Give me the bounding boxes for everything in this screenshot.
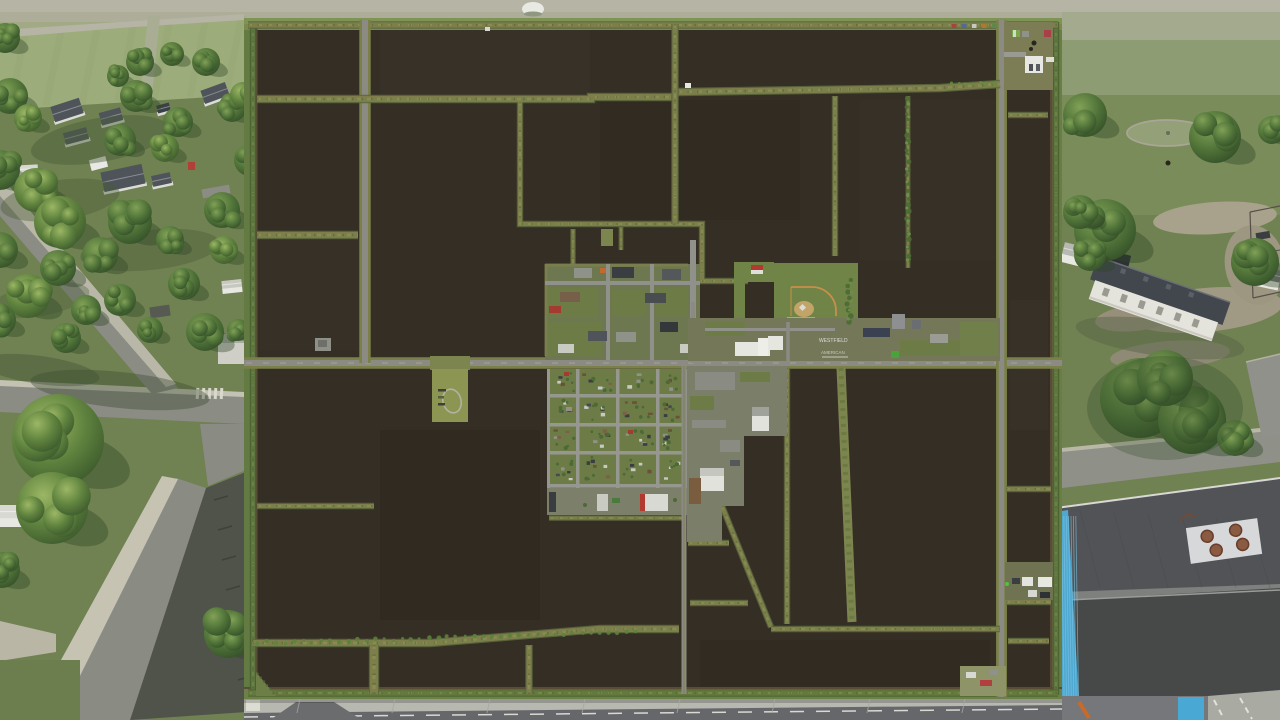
svg-text:AMERICAN: AMERICAN [821,350,845,355]
svg-text:WESTFIELD: WESTFIELD [819,338,848,344]
